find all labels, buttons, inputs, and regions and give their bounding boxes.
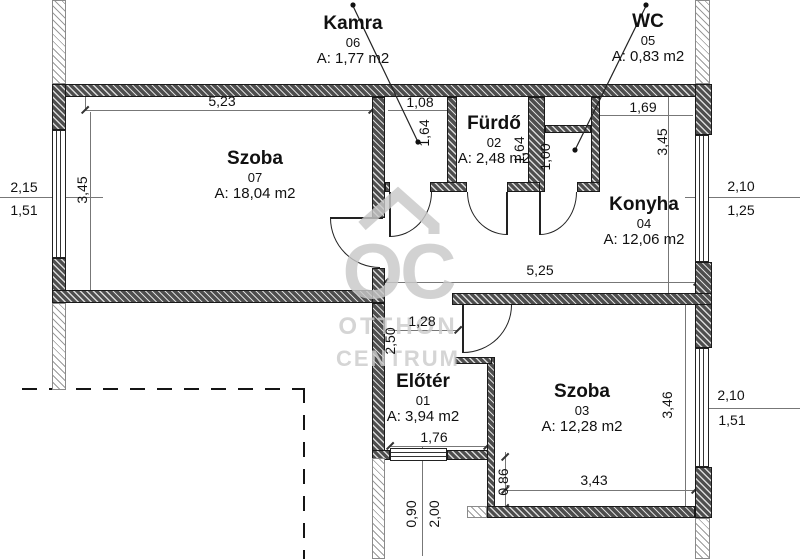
dimension-label: 1,51 bbox=[709, 412, 755, 428]
dimension-label: 2,10 bbox=[718, 178, 764, 194]
room-area: A: 1,77 m2 bbox=[286, 50, 420, 67]
floor-plan: OC OTTHON CENTRUM Kamra 06 A: 1,77 m2 WC… bbox=[0, 0, 800, 559]
watermark-monogram: OC bbox=[343, 227, 456, 315]
dimension-label: 3,46 bbox=[659, 383, 675, 427]
dimension-label: 1,00 bbox=[537, 135, 553, 179]
watermark-line2: CENTRUM bbox=[336, 346, 460, 371]
dimension-label: 1,64 bbox=[511, 128, 527, 172]
dimension-label: 2,15 bbox=[1, 179, 47, 195]
dimension-label: 2,50 bbox=[382, 319, 398, 363]
room-number: 03 bbox=[507, 403, 657, 418]
dimension-label: 1,64 bbox=[416, 111, 432, 155]
leader-dot bbox=[572, 147, 577, 152]
room-name: Konyha bbox=[569, 194, 719, 216]
room-name: Szoba bbox=[180, 148, 330, 170]
dimension-label: 5,23 bbox=[199, 93, 245, 109]
dimension-label: 1,28 bbox=[399, 313, 445, 329]
room-label-wc: WC 05 A: 0,83 m2 bbox=[578, 11, 718, 65]
dimension-label: 2,10 bbox=[708, 387, 754, 403]
room-label-szoba-07: Szoba 07 A: 18,04 m2 bbox=[180, 148, 330, 202]
leader-dot bbox=[350, 2, 355, 7]
room-number: 01 bbox=[350, 393, 496, 408]
room-name: Fürdő bbox=[419, 113, 569, 135]
room-label-szoba-03: Szoba 03 A: 12,28 m2 bbox=[507, 381, 657, 435]
room-area: A: 12,28 m2 bbox=[507, 418, 657, 435]
room-number: 04 bbox=[569, 216, 719, 231]
room-area: A: 12,06 m2 bbox=[569, 231, 719, 248]
dimension-label: 3,45 bbox=[74, 168, 90, 212]
dimension-label: 0,90 bbox=[403, 492, 419, 536]
room-number: 05 bbox=[578, 33, 718, 48]
room-label-kamra: Kamra 06 A: 1,77 m2 bbox=[286, 13, 420, 67]
dimension-label: 0,86 bbox=[495, 460, 511, 504]
dimension-label: 1,51 bbox=[1, 202, 47, 218]
dimension-label: 1,76 bbox=[411, 429, 457, 445]
room-name: Kamra bbox=[286, 13, 420, 35]
room-area: A: 3,94 m2 bbox=[350, 408, 496, 425]
dimension-label: 5,25 bbox=[517, 262, 563, 278]
leader-dot bbox=[643, 2, 648, 7]
room-label-eloter: Előtér 01 A: 3,94 m2 bbox=[350, 371, 496, 425]
room-name: WC bbox=[578, 11, 718, 33]
watermark-logo: OC OTTHON CENTRUM bbox=[322, 178, 482, 378]
room-number: 07 bbox=[180, 170, 330, 185]
room-number: 06 bbox=[286, 35, 420, 50]
dimension-label: 1,25 bbox=[718, 202, 764, 218]
dimension-label: 1,69 bbox=[620, 99, 666, 115]
dimension-label: 3,45 bbox=[654, 120, 670, 164]
dimension-label: 3,43 bbox=[571, 472, 617, 488]
room-name: Szoba bbox=[507, 381, 657, 403]
room-area: A: 18,04 m2 bbox=[180, 185, 330, 202]
room-name: Előtér bbox=[350, 371, 496, 393]
dimension-label: 2,00 bbox=[426, 492, 442, 536]
room-label-konyha: Konyha 04 A: 12,06 m2 bbox=[569, 194, 719, 248]
room-area: A: 0,83 m2 bbox=[578, 48, 718, 65]
dimension-label: 1,08 bbox=[397, 94, 443, 110]
